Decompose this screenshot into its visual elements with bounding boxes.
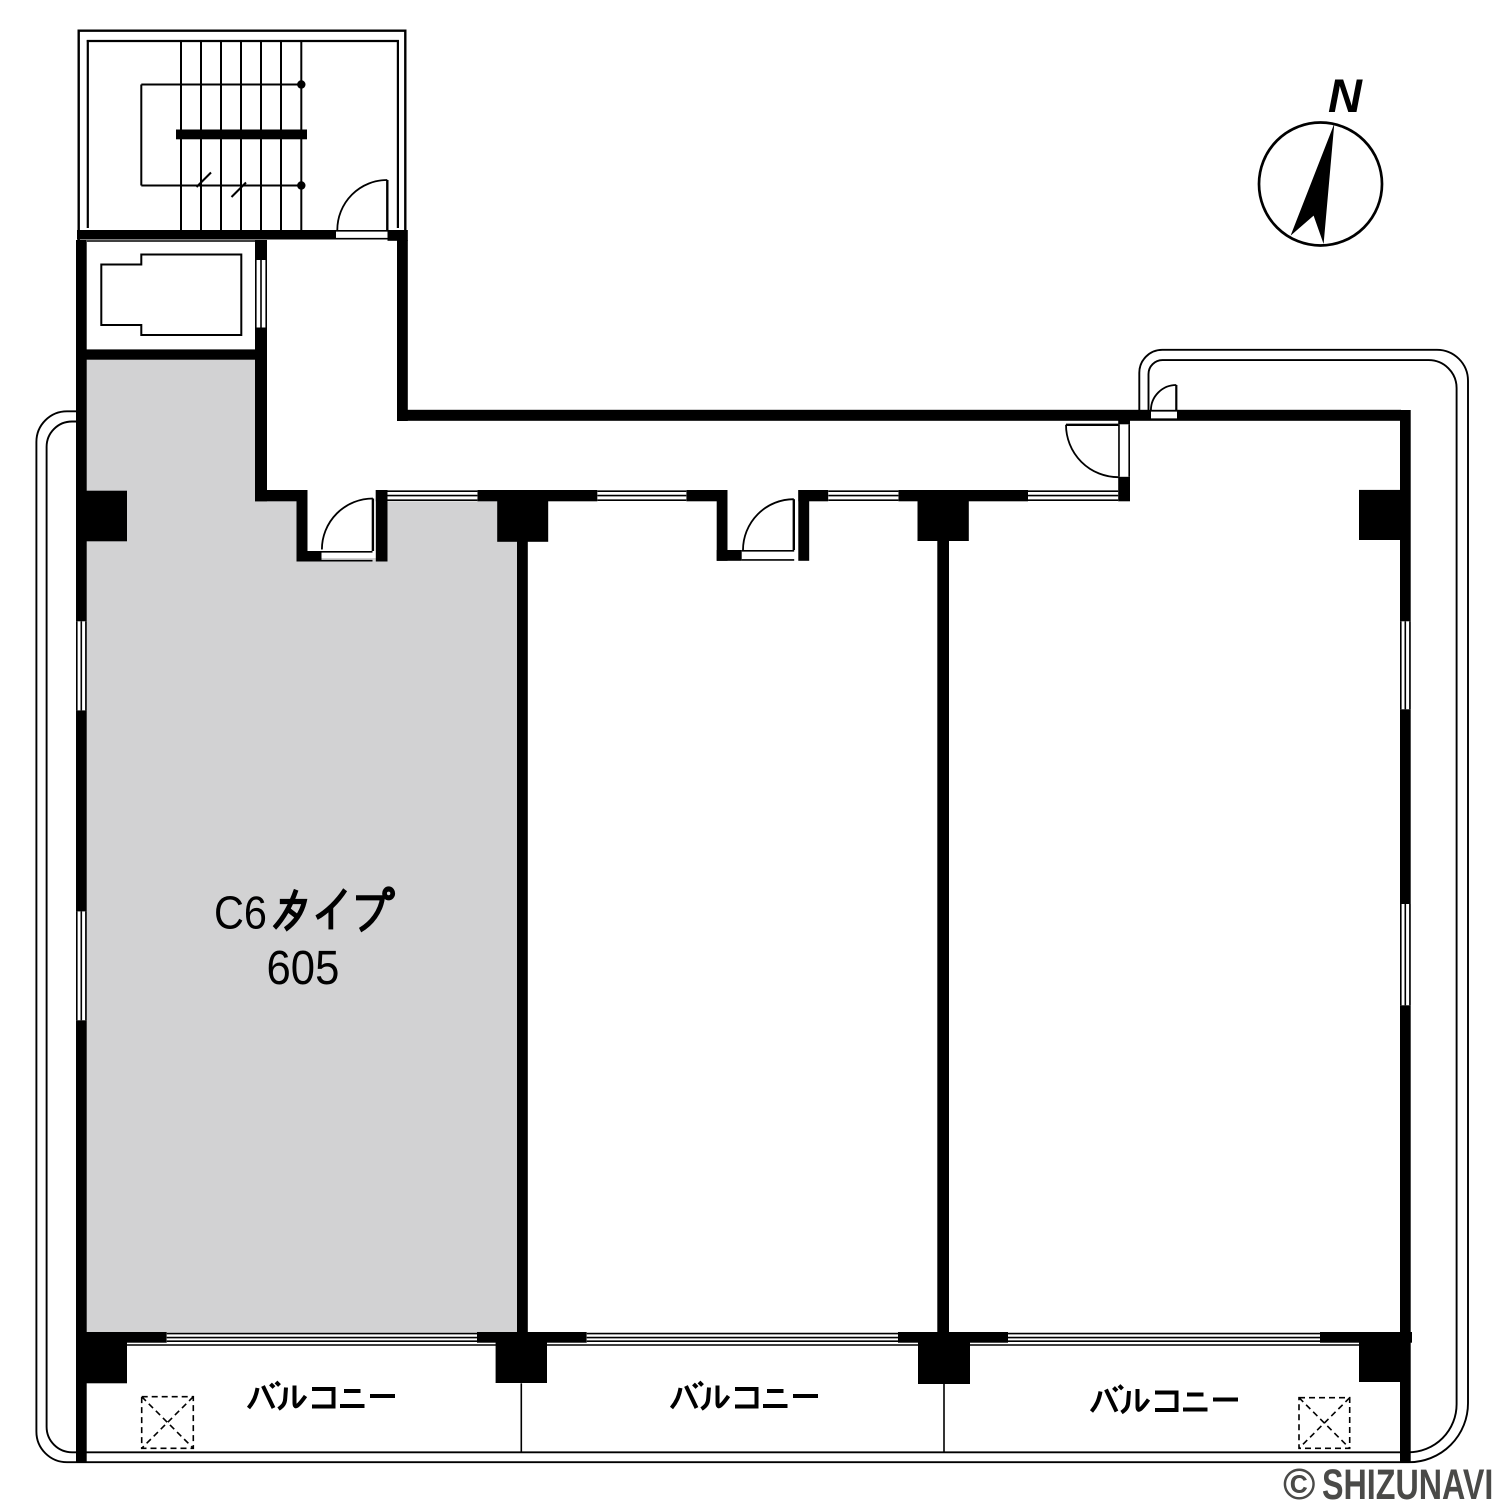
svg-text:N: N: [1328, 69, 1363, 122]
svg-text:C6: C6: [214, 888, 267, 940]
svg-text:605: 605: [267, 940, 340, 994]
svg-text:SHIZUNAVI: SHIZUNAVI: [1322, 1462, 1493, 1500]
svg-text:©: ©: [1283, 1460, 1315, 1500]
